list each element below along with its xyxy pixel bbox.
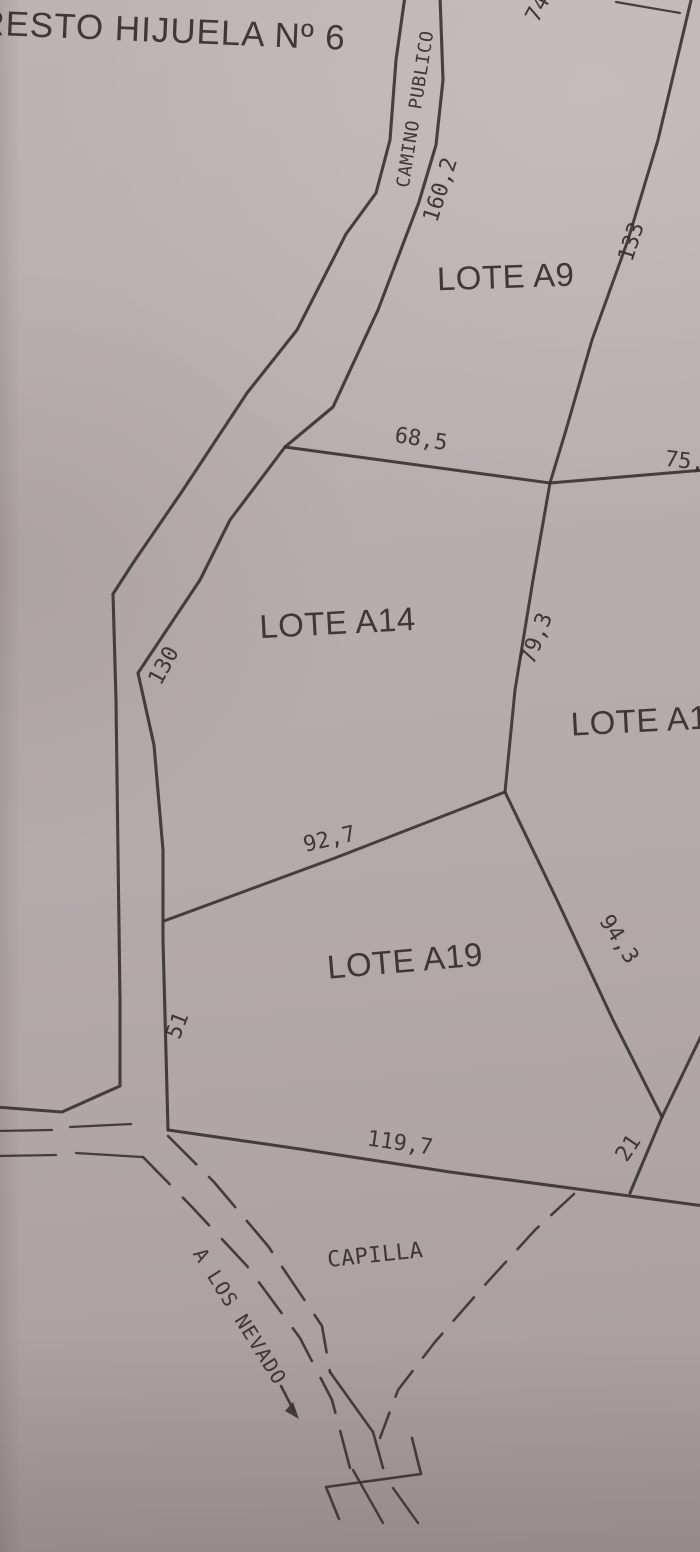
survey-plan-photo: RESTO HIJUELA Nº 6 CAMINO PUBLICO 74 160… (0, 0, 700, 1552)
capilla-label: CAPILLA (326, 1238, 424, 1273)
measurement-130: 130 (144, 643, 185, 690)
dashed-boundary-capilla (380, 1194, 574, 1438)
road-right-edge-bottom-solid (330, 1372, 383, 1468)
boundary-line-92-7 (164, 792, 505, 921)
road-left-edge (0, 0, 405, 1112)
gate-road-dash-left (353, 1470, 383, 1523)
measurement-68-5: 68,5 (393, 423, 449, 456)
measurement-21: 21 (611, 1130, 647, 1166)
measurement-133: 133 (614, 219, 650, 265)
measurement-160-2: 160,2 (419, 155, 463, 226)
boundary-line-68-5 (285, 447, 550, 483)
boundary-line-top-right (616, 2, 680, 13)
measurement-75-partial: 75, (664, 447, 700, 477)
plan-title: RESTO HIJUELA Nº 6 (0, 3, 346, 57)
measurement-94-3: 94,3 (594, 910, 644, 968)
side-road-lower-edge (0, 1153, 142, 1157)
lot-a19-label: LOTE A19 (326, 935, 485, 985)
plan-canvas: RESTO HIJUELA Nº 6 CAMINO PUBLICO 74 160… (0, 0, 700, 1552)
measurement-119-7: 119,7 (365, 1127, 434, 1161)
measurement-74-partial: 74 (521, 0, 556, 27)
lot-a14-label: LOTE A14 (258, 600, 416, 645)
side-road-middle-edge (0, 1124, 131, 1131)
lot-a9-label: LOTE A9 (436, 256, 575, 298)
boundary-line-northeast-of-vertex (662, 1030, 700, 1117)
lot-a1-partial-label: LOTE A1 (570, 698, 700, 742)
direction-arrow-head (285, 1402, 299, 1419)
direction-note-label: A LOS NEVADO (188, 1244, 291, 1389)
gate-road-dash-right (393, 1488, 418, 1523)
